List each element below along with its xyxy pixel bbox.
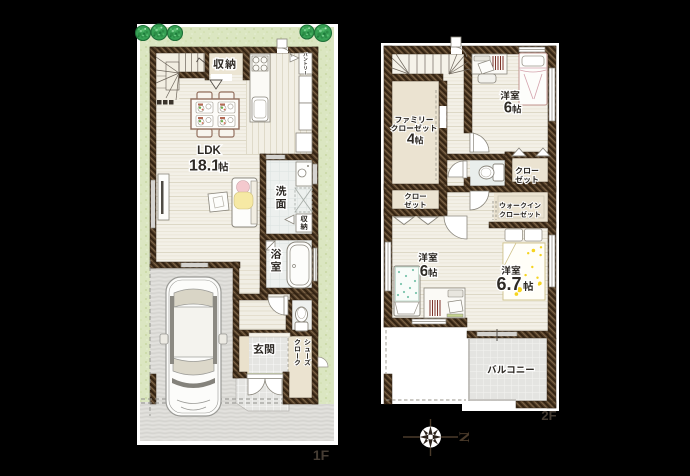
svg-text:18.1: 18.1 [189, 158, 220, 175]
svg-text:1F: 1F [313, 447, 330, 463]
svg-text:6.7: 6.7 [496, 274, 521, 294]
svg-text:2F: 2F [541, 408, 556, 423]
svg-text:N: N [456, 432, 472, 443]
svg-text:LDK: LDK [197, 145, 221, 157]
